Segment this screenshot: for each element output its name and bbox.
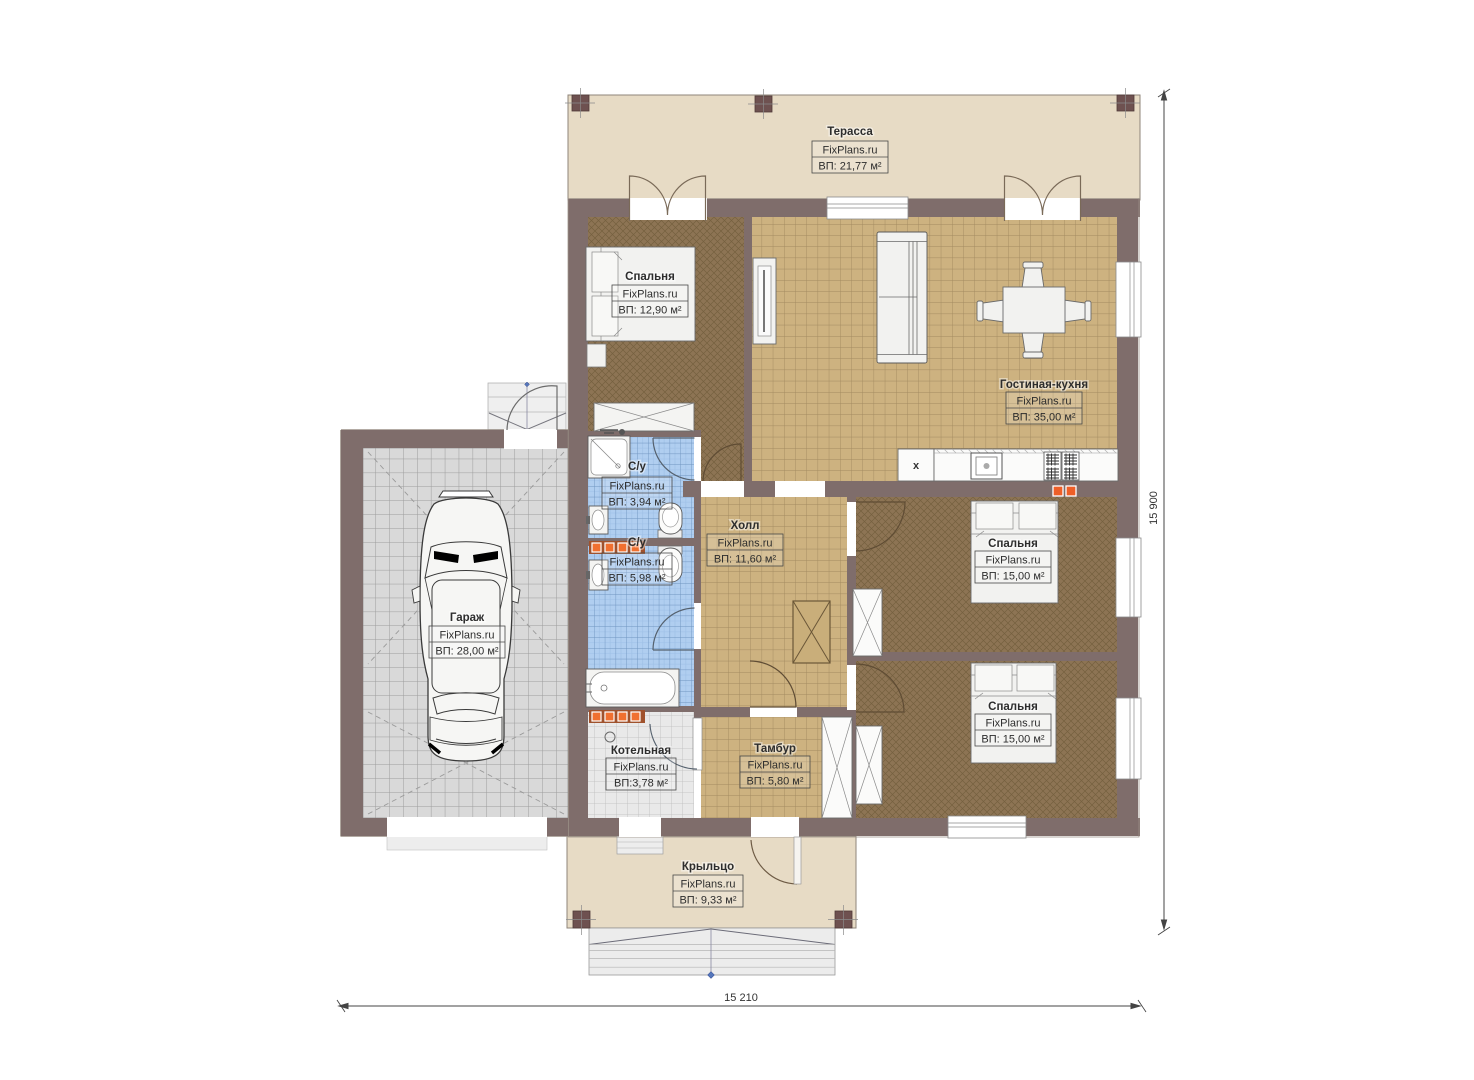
svg-text:FixPlans.ru: FixPlans.ru	[985, 718, 1040, 730]
svg-text:С/у: С/у	[628, 461, 647, 473]
svg-text:ВП: 35,00 м²: ВП: 35,00 м²	[1012, 412, 1076, 424]
svg-text:ВП: 9,33 м²: ВП: 9,33 м²	[679, 895, 736, 907]
svg-text:ВП: 15,00 м²: ВП: 15,00 м²	[981, 571, 1045, 583]
svg-text:ВП: 12,90 м²: ВП: 12,90 м²	[618, 305, 682, 317]
svg-text:FixPlans.ru: FixPlans.ru	[747, 760, 802, 772]
svg-text:ВП: 28,00 м²: ВП: 28,00 м²	[435, 646, 499, 658]
svg-text:ВП:3,78 м²: ВП:3,78 м²	[614, 778, 668, 790]
svg-text:FixPlans.ru: FixPlans.ru	[439, 630, 494, 642]
svg-text:Гостиная-кухня: Гостиная-кухня	[1000, 379, 1088, 391]
svg-text:Холл: Холл	[731, 520, 760, 532]
svg-text:FixPlans.ru: FixPlans.ru	[609, 557, 664, 569]
svg-text:x: x	[913, 460, 920, 472]
svg-text:Терасса: Терасса	[827, 126, 873, 138]
svg-text:15 210: 15 210	[724, 992, 758, 1004]
svg-text:ВП: 3,94 м²: ВП: 3,94 м²	[608, 497, 665, 509]
svg-text:FixPlans.ru: FixPlans.ru	[680, 879, 735, 891]
svg-text:ВП: 21,77 м²: ВП: 21,77 м²	[818, 161, 882, 173]
svg-text:Тамбур: Тамбур	[754, 743, 796, 755]
svg-text:ВП: 5,80 м²: ВП: 5,80 м²	[746, 776, 803, 788]
svg-text:FixPlans.ru: FixPlans.ru	[613, 762, 668, 774]
svg-text:ВП: 15,00 м²: ВП: 15,00 м²	[981, 734, 1045, 746]
svg-text:FixPlans.ru: FixPlans.ru	[1016, 396, 1071, 408]
svg-text:С/у: С/у	[628, 537, 647, 549]
svg-text:Крыльцо: Крыльцо	[682, 861, 734, 873]
svg-text:ВП: 5,98 м²: ВП: 5,98 м²	[608, 573, 665, 585]
svg-text:Спальня: Спальня	[988, 701, 1038, 713]
svg-text:FixPlans.ru: FixPlans.ru	[609, 481, 664, 493]
svg-text:FixPlans.ru: FixPlans.ru	[622, 289, 677, 301]
svg-text:Котельная: Котельная	[611, 745, 671, 757]
svg-text:ВП: 11,60 м²: ВП: 11,60 м²	[714, 554, 777, 566]
svg-text:FixPlans.ru: FixPlans.ru	[822, 145, 877, 157]
svg-text:FixPlans.ru: FixPlans.ru	[985, 555, 1040, 567]
svg-text:FixPlans.ru: FixPlans.ru	[717, 538, 772, 550]
svg-text:15 900: 15 900	[1148, 491, 1160, 525]
svg-text:Гараж: Гараж	[450, 612, 485, 624]
svg-text:Спальня: Спальня	[988, 538, 1038, 550]
svg-text:Спальня: Спальня	[625, 271, 675, 283]
